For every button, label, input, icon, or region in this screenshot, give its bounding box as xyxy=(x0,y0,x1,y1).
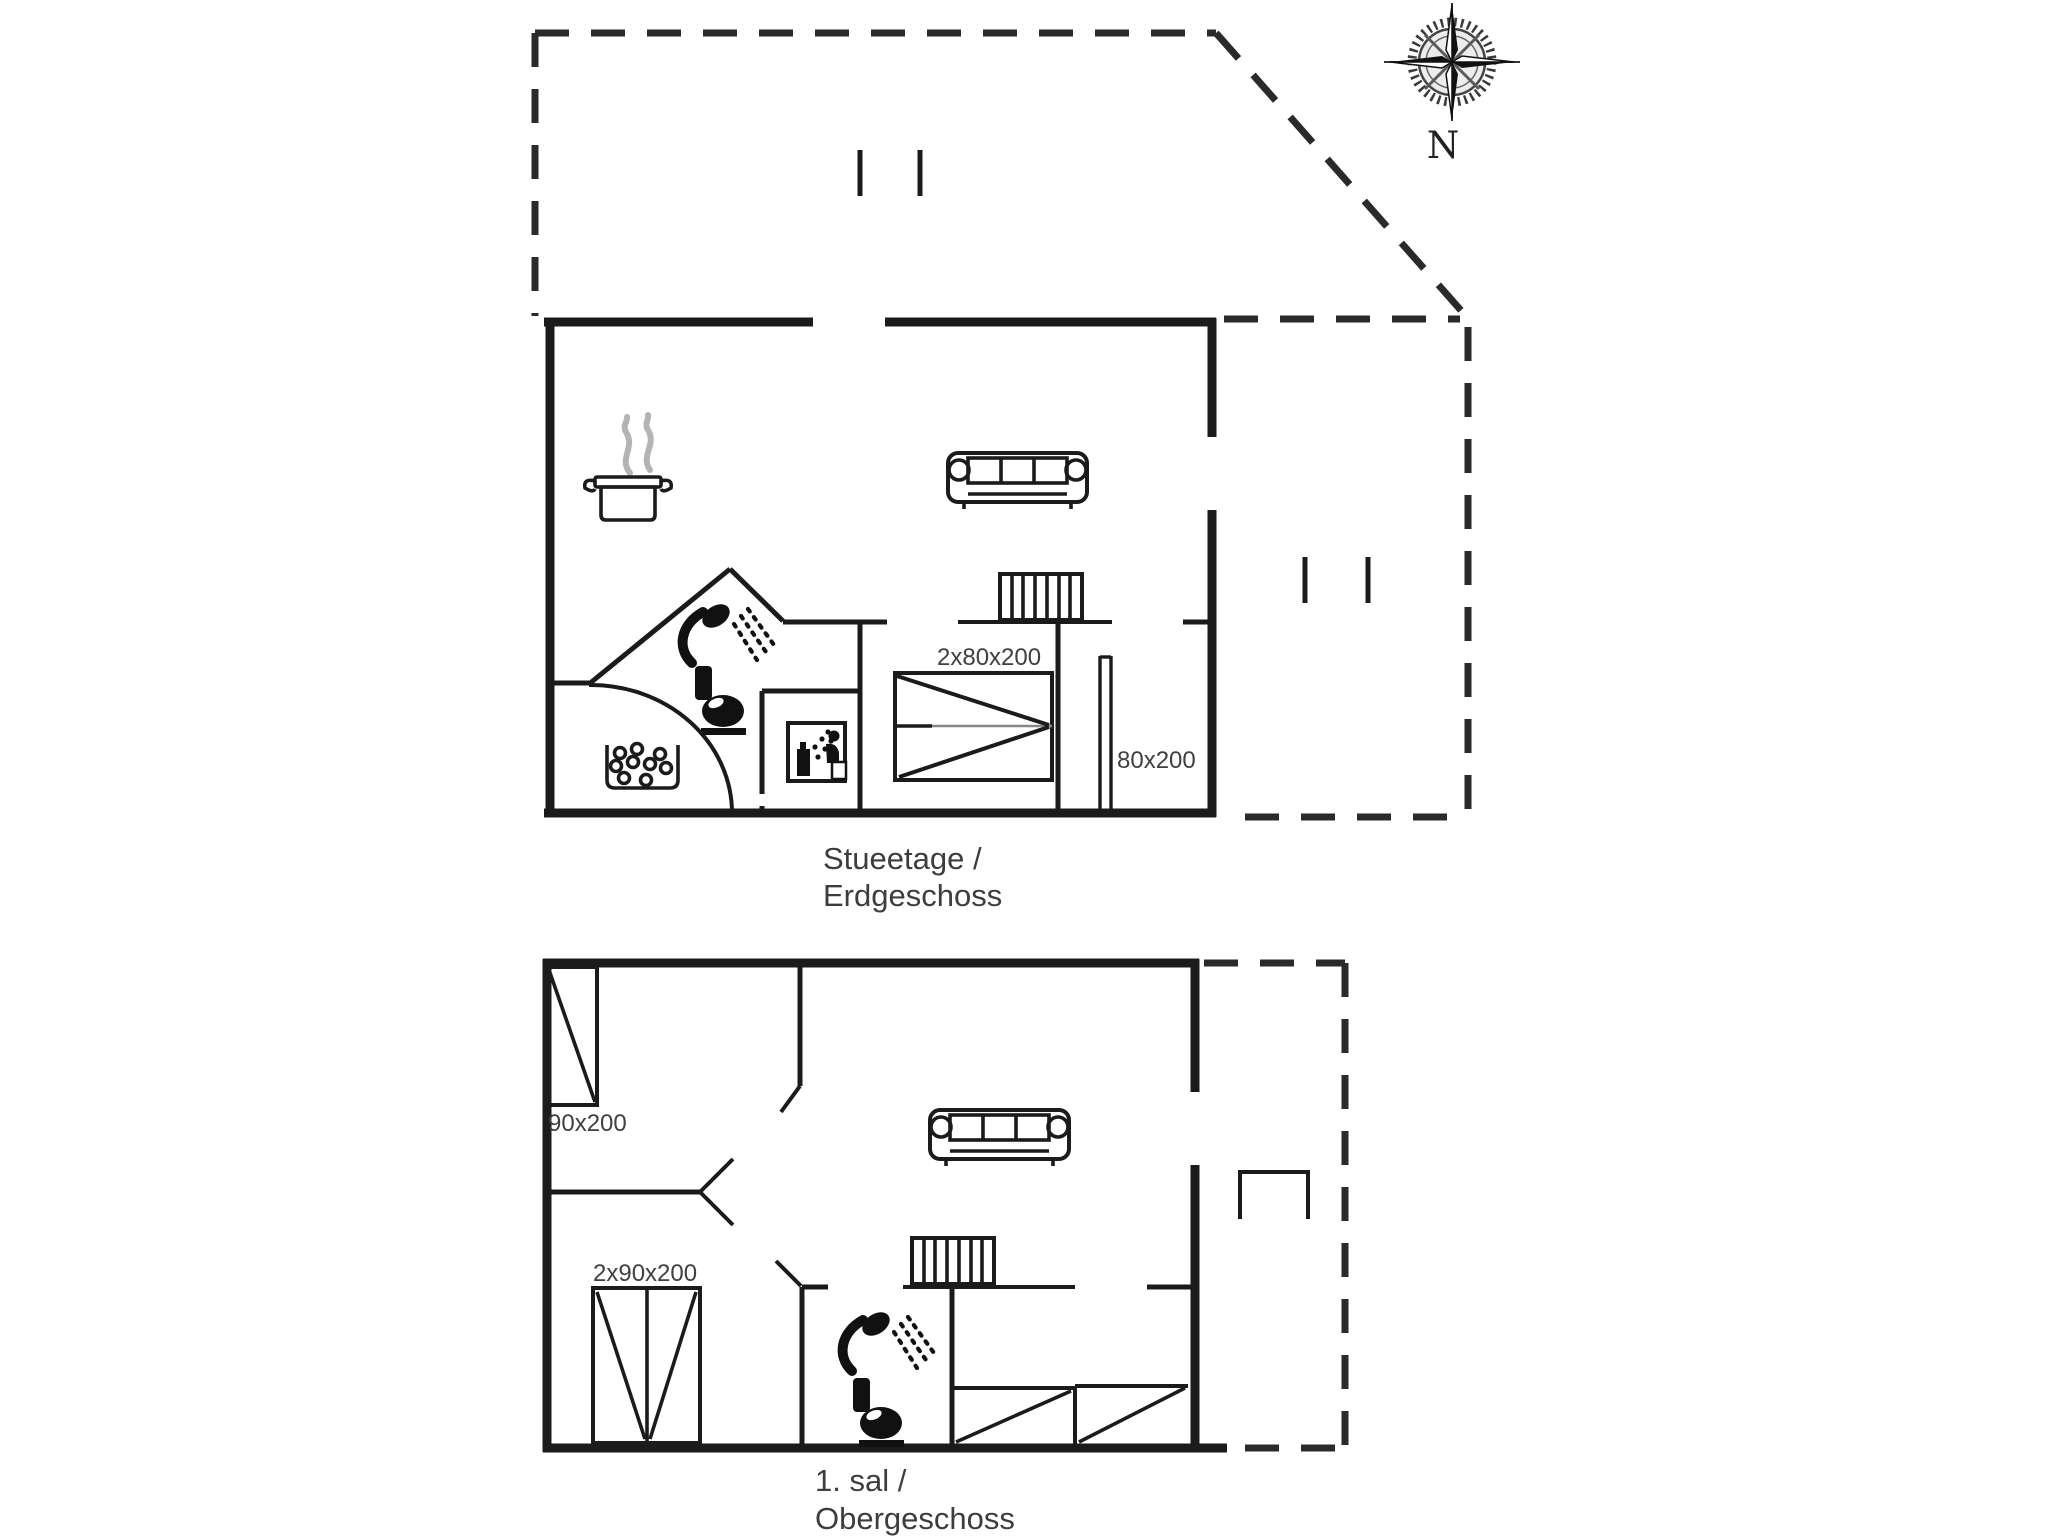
compass-north-label: N xyxy=(1427,124,1459,167)
first-floor-caption-line1: 1. sal / xyxy=(815,1463,907,1498)
floorplan-page: 2x80x200 80x200 Stueetage / Erdgeschoss xyxy=(0,0,2048,1536)
page-background xyxy=(0,0,2048,1536)
ground-double-bed-label: 2x80x200 xyxy=(937,644,1041,671)
ground-floor-caption-line2: Erdgeschoss xyxy=(823,878,1002,913)
first-floor-caption-line2: Obergeschoss xyxy=(815,1501,1015,1536)
first-single-bed-label: 90x200 xyxy=(548,1110,627,1137)
ground-single-bed-label: 80x200 xyxy=(1117,747,1196,774)
first-double-bed-label: 2x90x200 xyxy=(593,1260,697,1287)
floor-plan-svg: 2x80x200 80x200 Stueetage / Erdgeschoss xyxy=(0,0,2048,1536)
ground-floor-caption-line1: Stueetage / xyxy=(823,841,982,876)
